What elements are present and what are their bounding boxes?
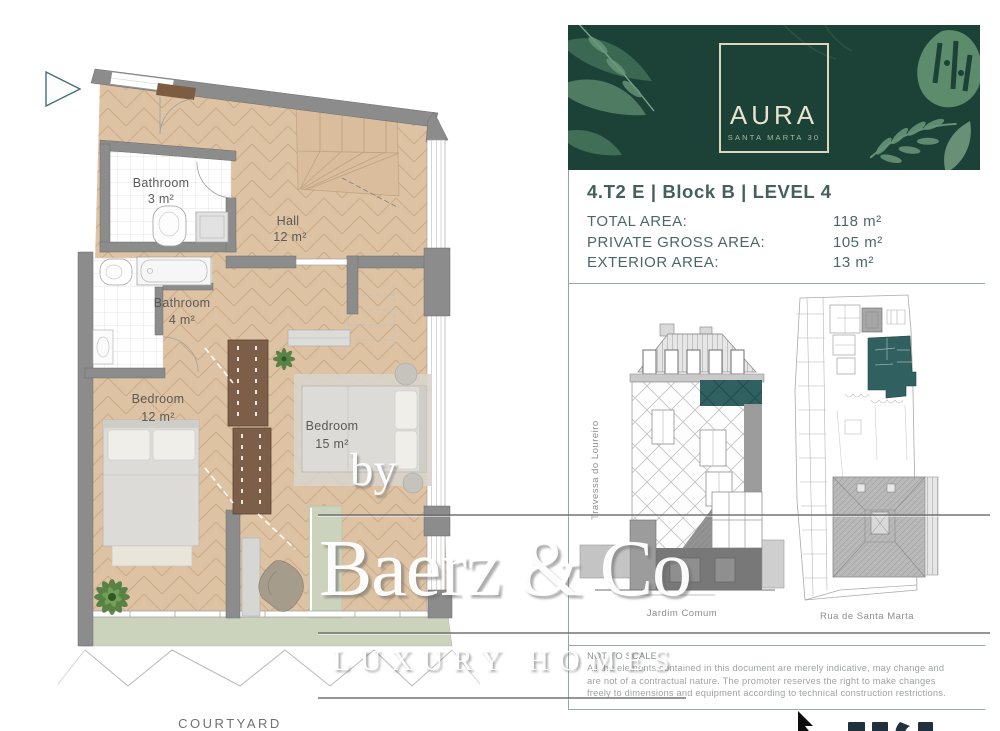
sliding-door <box>296 259 347 265</box>
area-row: PRIVATE GROSS AREA: 105 m² <box>587 233 977 254</box>
room-label: Hall <box>277 214 300 228</box>
disclaimer-line: are not of a contractual nature. The pro… <box>587 675 975 687</box>
terrace-door-leaf <box>242 538 260 616</box>
area-value: 105 m² <box>833 233 977 254</box>
side-table <box>403 473 423 493</box>
shower <box>196 212 228 242</box>
area-value: 13 m² <box>833 253 977 274</box>
brand-name: AURA <box>730 102 818 128</box>
plant <box>273 348 295 370</box>
room-area: 12 m² <box>273 230 306 244</box>
area-label: TOTAL AREA: <box>587 212 833 233</box>
room-label: Bedroom <box>306 419 359 433</box>
room-area: 12 m² <box>141 410 174 424</box>
disclaimer-line: All the elements contained in this docum… <box>587 662 975 674</box>
bathtub <box>137 257 211 285</box>
room-area: 15 m² <box>315 437 348 451</box>
room-label: Bathroom <box>154 296 211 310</box>
divider <box>568 283 985 284</box>
street-label-left: Travessa do Loureiro <box>590 420 601 519</box>
partial-logo <box>848 722 933 731</box>
location-drawings: Travessa do Loureiro Jardim Comum Rua de… <box>575 290 990 642</box>
entrance-arrow-icon <box>46 72 80 106</box>
street-label-bottom: Rua de Santa Marta <box>820 611 914 622</box>
disclaimer: NOT TO SCALE All the elements contained … <box>587 650 975 699</box>
area-summary: TOTAL AREA: 118 m² PRIVATE GROSS AREA: 1… <box>587 212 977 274</box>
unit-highlight <box>868 336 916 398</box>
corner-overlay <box>790 698 1000 731</box>
room-area: 3 m² <box>148 192 174 206</box>
room-label: Bedroom <box>132 392 185 406</box>
building-elevation <box>580 324 784 595</box>
area-value: 118 m² <box>833 212 977 233</box>
panel-left-border <box>568 170 569 709</box>
brand-banner: AURA SANTA MARTA 30 <box>568 25 980 170</box>
brand-subtitle: SANTA MARTA 30 <box>728 133 821 142</box>
floor-plan-drawing: Bathroom 3 m² Bathroom 4 m² Bedroom 12 m… <box>0 0 560 731</box>
area-label: EXTERIOR AREA: <box>587 253 833 274</box>
garden-label: Jardim Comum <box>647 608 717 619</box>
unit-title: 4.T2 E | Block B | LEVEL 4 <box>587 181 977 203</box>
area-row: EXTERIOR AREA: 13 m² <box>587 253 977 274</box>
page: Bathroom 3 m² Bathroom 4 m² Bedroom 12 m… <box>0 0 1000 731</box>
divider <box>568 645 985 646</box>
area-label: PRIVATE GROSS AREA: <box>587 233 833 254</box>
cursor-icon <box>798 711 813 731</box>
site-plan <box>795 295 938 600</box>
toilet <box>100 259 132 285</box>
courtyard-label: COURTYARD <box>178 716 282 731</box>
washbasin <box>93 330 113 364</box>
folding-doors <box>85 650 452 686</box>
room-label: Bathroom <box>133 176 190 190</box>
level-highlight <box>700 380 762 406</box>
disclaimer-heading: NOT TO SCALE <box>587 650 975 662</box>
room-area: 4 m² <box>169 313 195 327</box>
brand-logo: AURA SANTA MARTA 30 <box>719 43 829 153</box>
area-row: TOTAL AREA: 118 m² <box>587 212 977 233</box>
side-table <box>395 363 417 385</box>
